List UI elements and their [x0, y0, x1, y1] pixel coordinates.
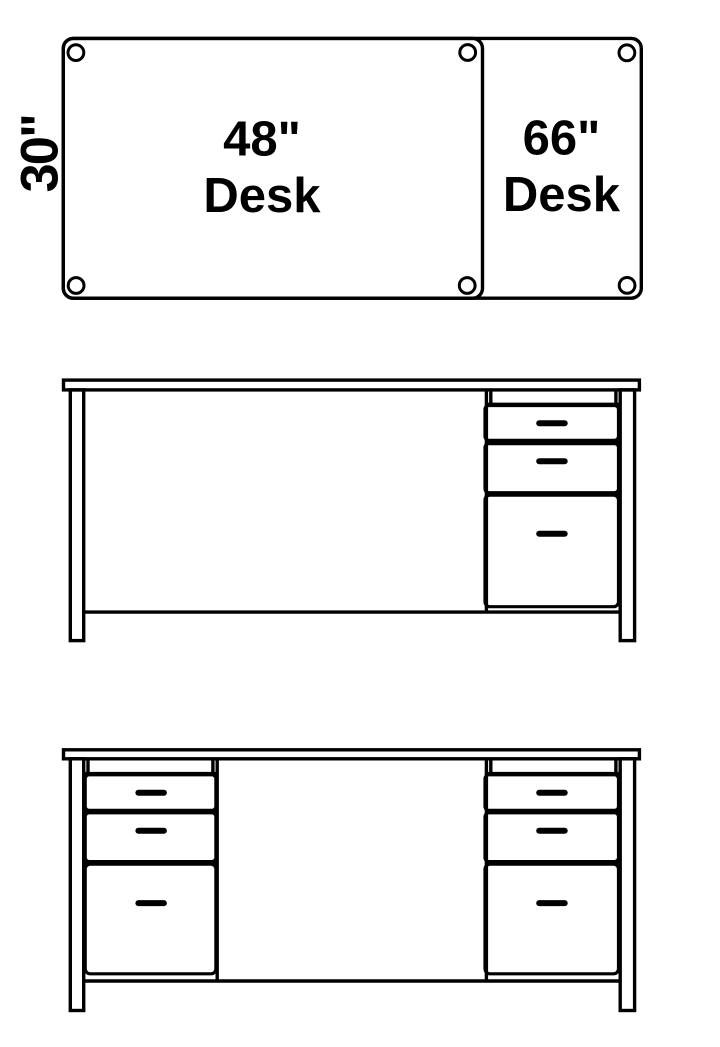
svg-text:Desk: Desk — [203, 169, 321, 223]
svg-text:66": 66" — [523, 112, 601, 166]
svg-text:48": 48" — [223, 112, 301, 166]
svg-text:30": 30" — [10, 115, 69, 192]
svg-text:Desk: Desk — [503, 168, 621, 222]
